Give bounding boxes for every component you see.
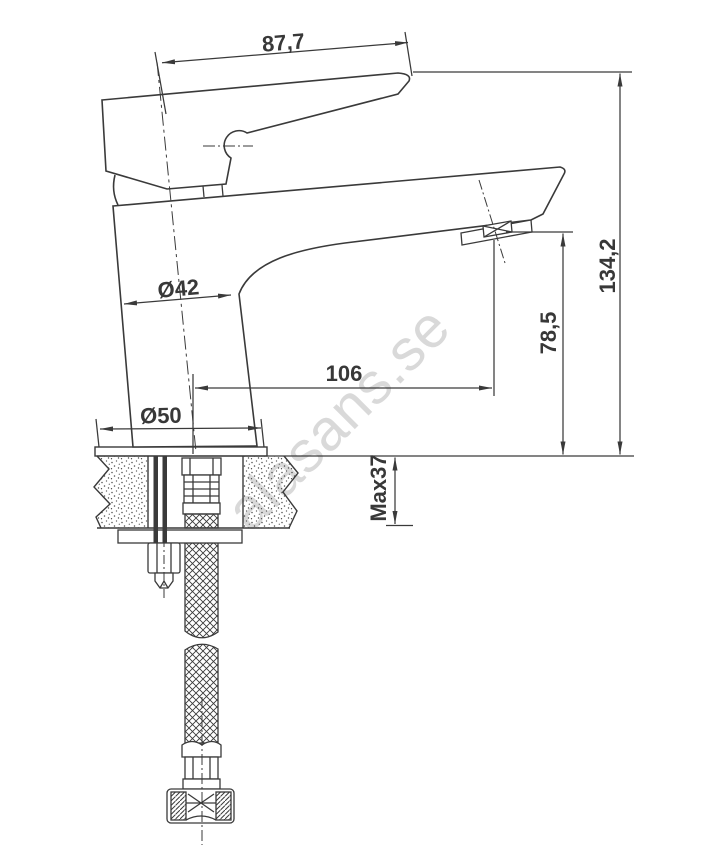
hose-upper-segment xyxy=(185,543,218,638)
drawing-canvas: alasans.se xyxy=(0,0,711,851)
mounting-stud-rod xyxy=(163,456,168,543)
dim-spout-reach-label: 106 xyxy=(326,361,363,386)
nut-hatch-left xyxy=(171,792,186,820)
dim-body-diameter-label: Ø42 xyxy=(157,274,201,303)
dim-total-height-label: 134,2 xyxy=(595,238,620,293)
shank-hex xyxy=(182,458,221,475)
shank-hose-section xyxy=(185,514,218,528)
mounting-stud-nut xyxy=(148,543,180,588)
dim-spout-height-label: 78,5 xyxy=(536,312,561,355)
hose-nut xyxy=(167,789,234,823)
escutcheon-plate xyxy=(95,447,267,456)
dim-max-mounting-thickness-label: Max37 xyxy=(366,454,391,521)
mounting-stud-rod xyxy=(154,456,159,543)
body-left-shoulder xyxy=(114,175,118,205)
nut-hatch-right xyxy=(216,792,231,820)
handle-outline xyxy=(102,73,410,189)
faucet-dimension-drawing: alasans.se xyxy=(0,0,711,851)
mounting-shank xyxy=(182,458,221,528)
dim-handle-length-label: 87,7 xyxy=(261,28,306,56)
faucet-handle xyxy=(102,73,410,189)
cartridge-cap-line xyxy=(203,186,204,197)
extension-line xyxy=(96,419,99,447)
extension-line xyxy=(405,32,412,76)
cartridge-cap-line xyxy=(222,185,223,196)
dim-base-diameter-label: Ø50 xyxy=(140,403,182,429)
extension-line xyxy=(261,419,264,447)
countertop-stipple-left xyxy=(94,456,148,528)
hose-lower-segment xyxy=(185,644,218,743)
mounting-washer xyxy=(118,530,242,543)
shank-collar xyxy=(183,503,220,514)
